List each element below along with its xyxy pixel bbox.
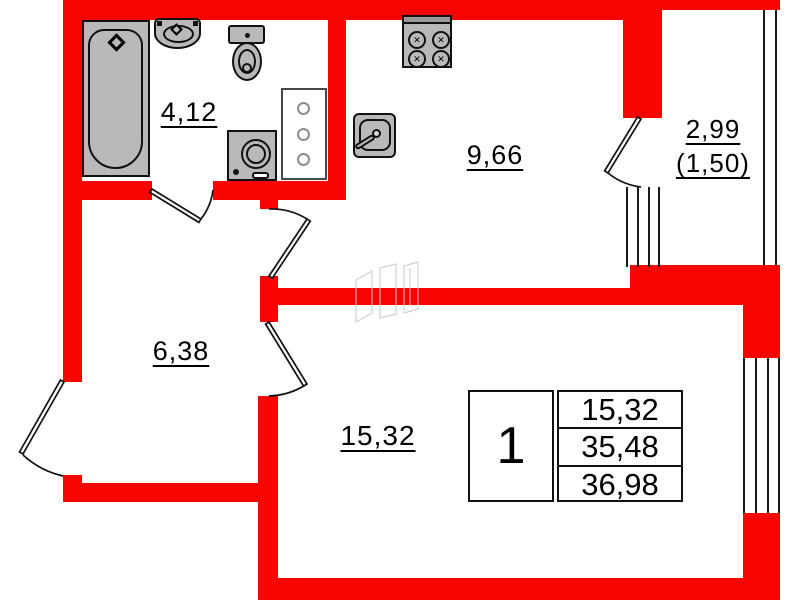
areas-table-row-total: 35,48 [559,429,681,466]
watermark [356,262,418,322]
living-room-door [266,322,307,396]
areas-table-row-living: 15,32 [559,392,681,429]
balcony-area-label: 2,99 [663,113,763,146]
bathroom-area-label: 4,12 [139,97,239,128]
kitchen-door [269,209,310,278]
floor-plan: ✕ ✕ ✕ ✕ [0,0,800,600]
living-room-area-label: 15,32 [318,420,438,452]
balcony-reduced-area-label: (1,50) [663,147,763,180]
areas-table-row-total-with-balcony: 36,98 [559,467,681,504]
unit-number-cell: 1 [468,390,554,502]
areas-table: 15,32 35,48 36,98 [557,390,683,502]
balcony-door [605,117,641,187]
bathroom-door [150,189,213,222]
doors-overlay [0,0,800,600]
kitchen-area-label: 9,66 [445,140,545,171]
entrance-door [20,380,65,476]
hallway-area-label: 6,38 [131,336,231,367]
